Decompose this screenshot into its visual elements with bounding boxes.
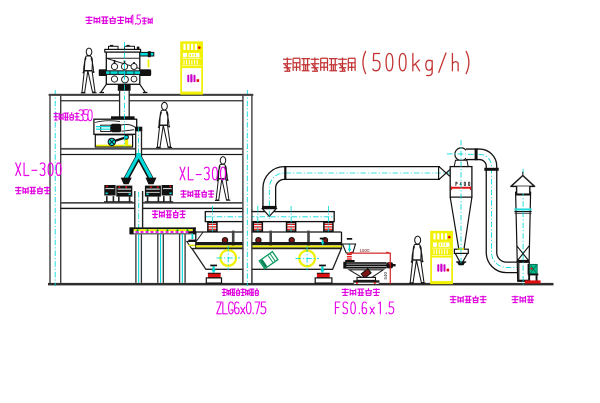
svg-text:1500: 1500 bbox=[360, 248, 371, 253]
svg-text:540: 540 bbox=[383, 271, 388, 279]
